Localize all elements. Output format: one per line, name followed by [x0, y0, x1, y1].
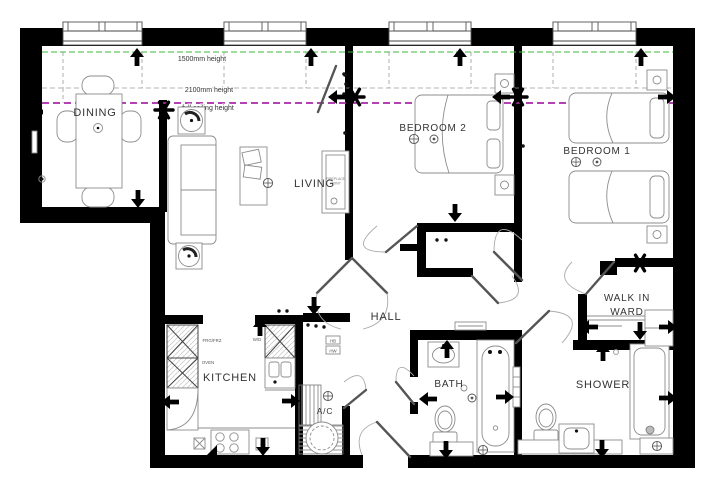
bedside-table-icon: [647, 70, 667, 90]
floor-plan-drawing: 1500mm height 2100mm height full ceiling…: [0, 0, 705, 486]
wall-hall-stub: [400, 244, 417, 251]
toilet-icon: [433, 406, 457, 443]
wall-bottom-right: [408, 455, 695, 468]
toilet-icon: [534, 404, 558, 441]
light-point-icon: [409, 134, 418, 143]
oven-label: OVEN: [202, 360, 214, 365]
vent-icon: [323, 391, 332, 400]
arrow-up-icon: [304, 48, 318, 66]
label-hall: HALL: [371, 311, 402, 323]
dining-chair-icon: [82, 76, 114, 95]
bedside-table-icon: [495, 175, 514, 195]
label-shower: SHOWER: [576, 379, 630, 391]
arrow-left-icon: [419, 392, 437, 406]
light-point-icon: [430, 135, 438, 143]
ceiling-fan-icon: [178, 107, 205, 134]
wall-kitchen-top-a: [163, 315, 203, 324]
bedroom2-furniture: [343, 73, 525, 195]
fridge-label: FRG/FRZ: [202, 338, 221, 343]
basin-icon: [559, 424, 594, 453]
floor-plan: 1500mm height 2100mm height full ceiling…: [0, 0, 705, 486]
label-1500mm: 1500mm height: [178, 56, 226, 63]
wall-ac-top: [303, 313, 350, 322]
label-bedroom2: BEDROOM 2: [399, 123, 466, 134]
door-entrance: [359, 422, 410, 457]
arrow-up-icon: [453, 48, 467, 66]
arrow-down-icon: [307, 297, 321, 315]
washer-dryer-icon: [265, 325, 295, 358]
dining-chair-icon: [82, 187, 114, 207]
fridge-freezer-icon: [167, 325, 198, 358]
hb-label: HB: [330, 338, 336, 343]
hw-label: HW: [329, 348, 337, 353]
bedside-table-icon: [495, 74, 514, 93]
window-dining-icon: [63, 22, 142, 45]
wall-bath-left-upper: [410, 330, 418, 377]
extract-fan-icon: [478, 445, 487, 454]
kitchen-units: FRG/FRZ OVEN W/D: [167, 325, 295, 455]
light-point-icon: [593, 158, 601, 166]
radiator-icon: [32, 131, 37, 153]
door-bath: [396, 367, 414, 404]
pillow-icon: [650, 176, 664, 218]
label-walkin-2: WARD: [610, 307, 643, 318]
arrow-up-icon: [130, 48, 144, 66]
light-point-icon: [571, 157, 580, 166]
wall-left: [20, 28, 42, 223]
label-bath: BATH: [434, 379, 463, 390]
dining-furniture: [32, 76, 141, 207]
window-bedroom2-icon: [389, 22, 471, 45]
door-leaf-living: [318, 66, 336, 112]
label-kitchen: KITCHEN: [203, 372, 257, 384]
vanity-counter: [430, 442, 473, 456]
extract-fan-icon: [652, 441, 661, 450]
doors: [316, 226, 614, 457]
wall-right: [673, 28, 695, 468]
water-cylinder-icon: [306, 422, 338, 454]
window-bedroom1-icon: [553, 22, 636, 45]
kitchen-sink-icon: [265, 358, 295, 390]
door-hall-cupboard: [472, 276, 518, 303]
label-2100mm: 2100mm height: [185, 87, 233, 94]
wall-kitchen-left: [150, 207, 165, 468]
wall-bottom-left: [150, 455, 363, 468]
hb-hw-controls: HB HW: [326, 336, 340, 354]
window-living-icon: [224, 22, 306, 45]
pillow-icon: [487, 101, 500, 130]
light-point-icon: [263, 178, 272, 187]
arrow-down-icon: [131, 190, 145, 208]
label-dining: DINING: [73, 107, 116, 119]
bedside-table-icon: [647, 226, 667, 243]
pillow-icon: [650, 98, 664, 138]
door-airing-cupboard: [344, 376, 366, 408]
corner-unit-icon: [167, 388, 198, 430]
label-bedroom1: BEDROOM 1: [563, 146, 630, 157]
post-star-icon: [631, 255, 649, 271]
wall-bath-top: [410, 330, 522, 340]
door-shower-room: [516, 311, 572, 343]
arrow-left-icon: [328, 90, 346, 104]
label-living: LIVING: [294, 178, 335, 190]
wall-dining-bottom: [20, 207, 165, 223]
label-ac: A/C: [317, 406, 334, 416]
arrow-up-icon: [634, 48, 648, 66]
living-furniture: FIREPLACE POINT: [168, 66, 349, 269]
pillow-icon: [487, 139, 500, 168]
wall-bedroom2-bottom: [417, 223, 522, 232]
coffee-table-icon: [240, 147, 267, 205]
wall-bedroom2-bedroom1: [514, 46, 522, 282]
wall-walkin-left: [578, 294, 587, 346]
bath-control-icon: [468, 394, 476, 402]
shower-tray-icon: [630, 344, 669, 439]
washer-label: W/D: [253, 337, 262, 342]
slatted-shelf-icon: [299, 385, 321, 425]
label-walkin-1: WALK IN: [604, 293, 650, 304]
arrow-down-icon: [448, 204, 462, 222]
wall-closet-bottom: [417, 268, 473, 277]
ceiling-fan-icon: [176, 243, 202, 269]
shower-room-fixtures: [518, 344, 673, 454]
oven-unit-icon: [167, 358, 198, 388]
dining-chair-icon: [120, 111, 141, 142]
